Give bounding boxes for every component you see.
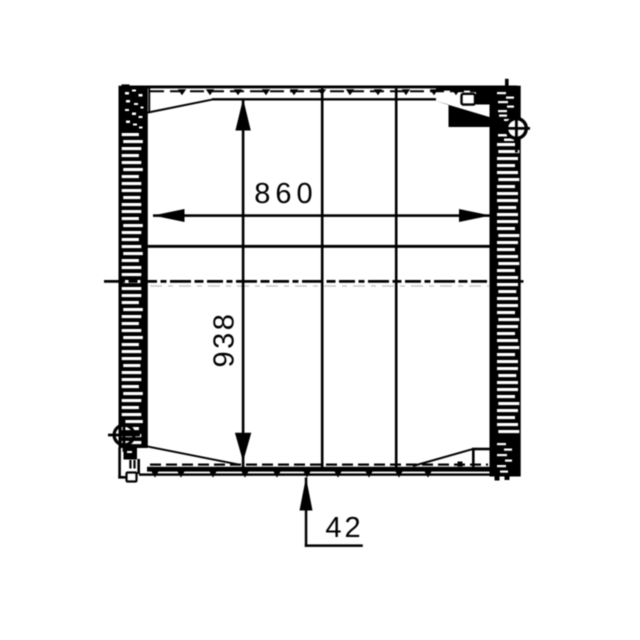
svg-text:42: 42 (325, 512, 363, 544)
svg-text:860: 860 (254, 178, 317, 210)
svg-text:938: 938 (209, 312, 241, 368)
